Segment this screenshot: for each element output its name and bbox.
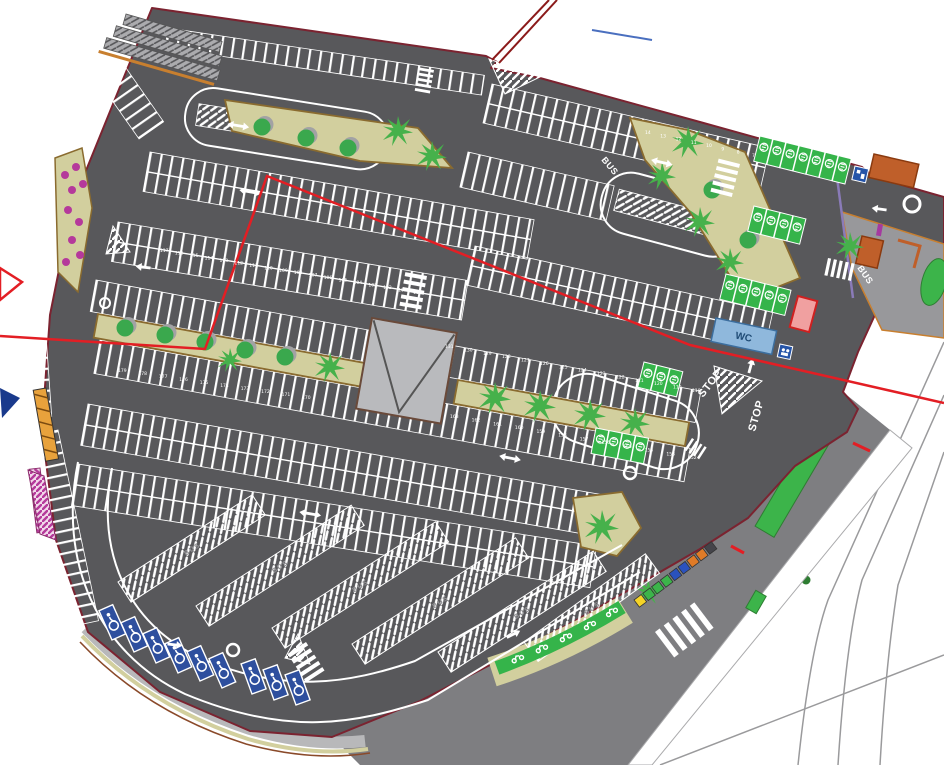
stall-number: 162 [472, 418, 481, 424]
stall-number: 119 [673, 385, 682, 391]
stall-number: 102 [383, 285, 392, 291]
parking-site-plan: BUS BUS BUS BUS BUS BUS [0, 0, 944, 765]
stall-number: 127 [521, 358, 530, 364]
stall-number: 122 [616, 375, 625, 381]
stall-number: 121 [635, 378, 644, 384]
stall-number: 115 [190, 253, 199, 259]
stall-number: 9 [721, 146, 724, 152]
stall-number: 111 [249, 263, 258, 269]
stall-number: 179 [118, 368, 127, 374]
stall-number: 170 [302, 395, 311, 401]
stall-number: 8 [737, 150, 740, 156]
stall-number: 157 [580, 436, 589, 442]
stall-number: 11 [691, 140, 697, 146]
stall-number: 156 [602, 440, 611, 446]
stall-number: 118 [692, 388, 701, 394]
stall-number: 130 [464, 347, 473, 353]
stall-number: 163 [450, 414, 459, 420]
stall-number: 105 [339, 278, 348, 284]
stall-number: 13 [660, 133, 666, 139]
stall-number: 126 [540, 361, 549, 367]
stall-number: 125 [559, 364, 568, 370]
stall-number: 116 [175, 251, 184, 257]
stall-number: 129 [483, 351, 492, 357]
stall-number: 114 [205, 255, 214, 261]
stall-number: 176 [179, 377, 188, 383]
stall-number: 106 [324, 275, 333, 281]
stall-number: 128 [502, 354, 511, 360]
stall-number: 172 [261, 389, 270, 395]
stall-number: 14 [645, 130, 651, 136]
stall-number: 158 [558, 433, 567, 439]
stall-number: 171 [282, 392, 291, 398]
stall-number: 120 [654, 381, 663, 387]
stall-number: 154 [645, 448, 654, 454]
stall-number: 175 [200, 380, 209, 386]
stall-number: 178 [138, 371, 147, 377]
stall-number: 173 [241, 386, 250, 392]
stall-number: 177 [159, 374, 168, 380]
stall-number: 123 [597, 371, 606, 377]
stall-number: 10 [706, 143, 712, 149]
stall-number: 174 [220, 383, 229, 389]
stall-number: 131 [445, 344, 454, 350]
stall-number: 12 [676, 137, 682, 143]
stall-number: 7 [752, 153, 755, 159]
stall-number: 101 [398, 288, 407, 294]
stall-number: 110 [264, 265, 273, 271]
stall-number: 155 [623, 444, 632, 450]
wc-sign [777, 344, 792, 359]
stall-number: 153 [666, 451, 675, 457]
info-sign [852, 166, 869, 183]
stall-number: 109 [279, 268, 288, 274]
stall-number: 108 [294, 270, 303, 276]
stall-number: 159 [537, 429, 546, 435]
stall-number: 117 [160, 248, 169, 254]
stall-number: 100 [413, 290, 422, 296]
stall-number: 113 [220, 258, 229, 264]
stall-number: 160 [515, 425, 524, 431]
stall-number: 161 [493, 422, 502, 428]
stall-number: 107 [309, 273, 318, 279]
stall-number: 112 [234, 260, 243, 266]
central-shelter [356, 318, 457, 424]
stall-number: 104 [354, 280, 363, 286]
site-plan-canvas: BUS BUS BUS BUS BUS BUS [0, 0, 944, 765]
stall-number: 152 [688, 455, 697, 461]
stall-number: 103 [368, 283, 377, 289]
stall-number: 124 [578, 368, 587, 374]
